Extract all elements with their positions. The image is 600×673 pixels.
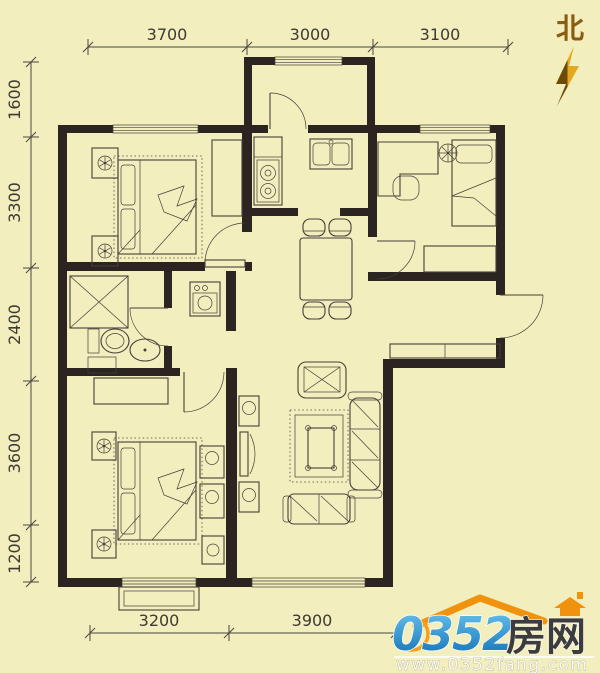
- dim-left-4: 3600: [5, 433, 24, 474]
- window-porch: [275, 57, 342, 65]
- dim-top-2: 3000: [290, 25, 331, 44]
- stove: [257, 160, 279, 202]
- washbasin: [130, 339, 160, 361]
- windows: [113, 57, 490, 610]
- wardrobe: [94, 378, 168, 404]
- shoe-cabinet: [390, 344, 500, 358]
- dining-table: [300, 238, 352, 300]
- floor-drain-icon: [439, 144, 457, 162]
- stool: [202, 536, 224, 564]
- kitchen-sink: [310, 139, 352, 169]
- rug: [290, 410, 348, 482]
- washing-machine: [190, 282, 220, 316]
- bay-window: [119, 578, 199, 610]
- door-entry: [500, 295, 543, 338]
- sofa-small: [283, 494, 355, 524]
- room-living: [239, 362, 382, 524]
- dim-left-2: 3300: [5, 182, 24, 223]
- floorplan-page: 3700 3000 3100 1600 3300 2400 3600 1200 …: [0, 0, 600, 673]
- dim-top-3: 3100: [420, 25, 461, 44]
- dining-chair: [303, 219, 325, 236]
- floorplan-svg: 3700 3000 3100 1600 3300 2400 3600 1200 …: [0, 0, 600, 673]
- dining-chair: [329, 219, 351, 236]
- dresser: [200, 484, 224, 518]
- kitchen-cabinet: [254, 137, 282, 157]
- dim-left-1: 1600: [5, 79, 24, 120]
- compass-north: 北: [556, 12, 584, 106]
- dim-left-5: 1200: [5, 533, 24, 574]
- watermark-cn-name: 房网: [506, 614, 586, 660]
- door-bedroom-lower: [184, 372, 224, 412]
- watermark-house-icon: [554, 592, 586, 616]
- dimension-line-left: 1600 3300 2400 3600 1200: [5, 57, 39, 587]
- dining-chair: [329, 302, 351, 319]
- door-bathroom: [130, 308, 168, 346]
- dim-bottom-2: 3900: [292, 611, 333, 630]
- room-dining: [300, 219, 352, 319]
- dining-chair: [303, 302, 325, 319]
- north-arrow-icon: [556, 46, 579, 106]
- wardrobe: [424, 246, 496, 272]
- nightstand: [92, 432, 116, 460]
- single-bed: [452, 140, 496, 226]
- double-bed: [118, 160, 197, 254]
- bed-rug: [114, 156, 202, 258]
- desk: [378, 142, 438, 196]
- room-bedroom-lower: [92, 378, 224, 564]
- shower: [70, 276, 128, 328]
- window-master-bedroom: [113, 125, 198, 133]
- sofa-large: [348, 392, 382, 498]
- watermark-number: 0352: [392, 607, 512, 661]
- dim-left-3: 2400: [5, 304, 24, 345]
- double-bed: [118, 442, 197, 540]
- dresser: [200, 446, 224, 478]
- toilet: [88, 329, 129, 353]
- watermark-url: www.0352fang.com: [396, 655, 589, 673]
- window-living-room: [252, 578, 365, 587]
- room-bathroom: [70, 276, 220, 373]
- entry-hall: [390, 344, 500, 358]
- tv-cabinet: [239, 396, 259, 512]
- dim-bottom-1: 3200: [139, 611, 180, 630]
- window-second-bedroom: [420, 125, 490, 133]
- door-master-bedroom: [205, 223, 245, 267]
- dimension-line-top: 3700 3000 3100: [83, 25, 513, 55]
- dimension-line-bottom: 3200 3900: [85, 611, 401, 641]
- north-label: 北: [556, 12, 584, 45]
- dim-top-1: 3700: [147, 25, 188, 44]
- bed-rug: [114, 438, 202, 544]
- kitchen-counter: [254, 137, 282, 205]
- watermark-logo: 0352 房网 www.0352fang.com: [389, 592, 594, 673]
- wardrobe: [212, 140, 242, 216]
- tv-icon: [250, 434, 255, 474]
- nightstand: [92, 148, 118, 178]
- room-master-bedroom: [92, 140, 242, 266]
- armchair: [298, 362, 346, 398]
- coffee-table: [306, 426, 337, 471]
- room-kitchen: [254, 137, 352, 205]
- room-second-bedroom: [378, 140, 496, 272]
- door-porch-kitchen: [270, 93, 306, 129]
- nightstand: [92, 530, 116, 558]
